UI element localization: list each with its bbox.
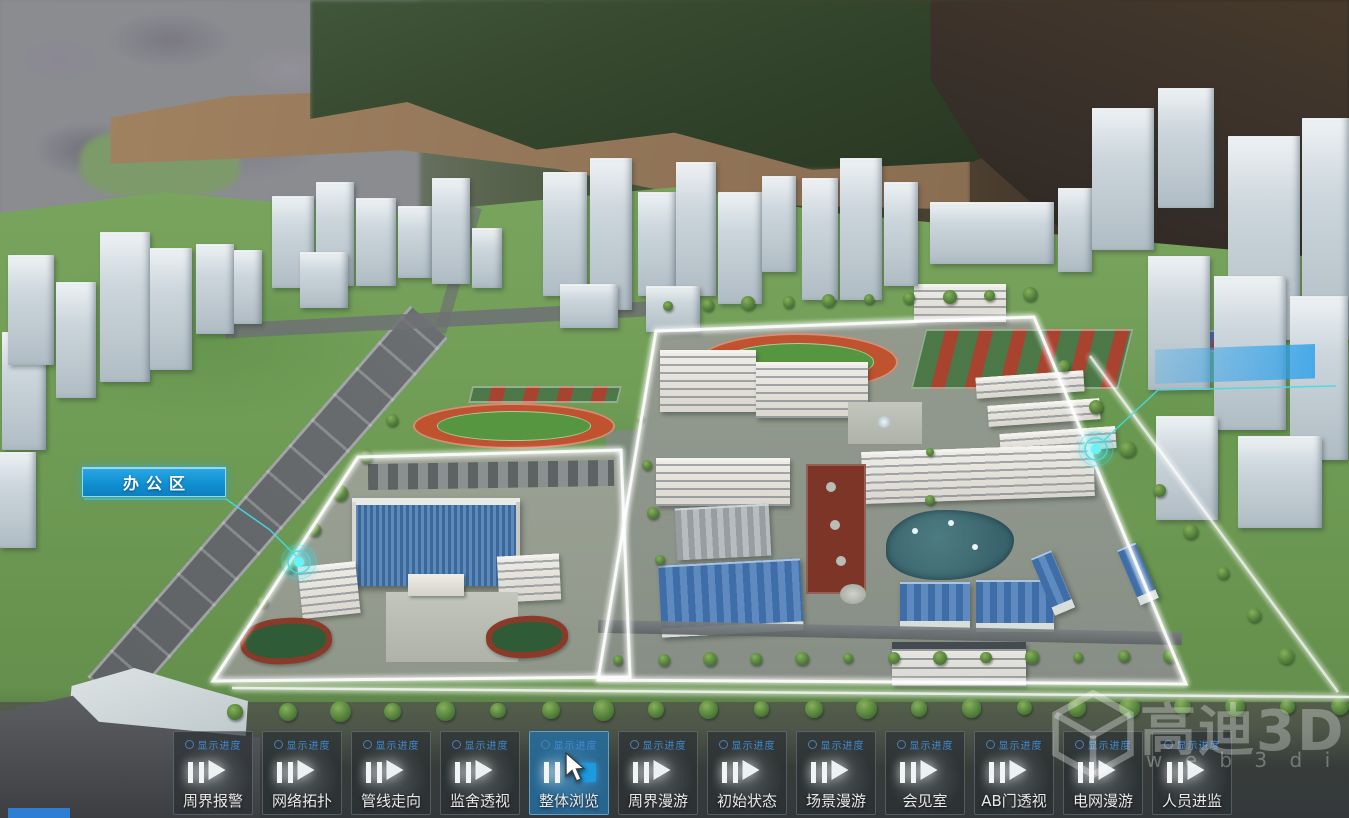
show-progress-toggle[interactable]: 显示进度	[708, 737, 786, 752]
tree	[542, 701, 560, 719]
tree	[658, 654, 670, 666]
toolbar-button-label: AB门透视	[975, 790, 1053, 811]
tree	[1217, 567, 1229, 579]
pause-icon[interactable]	[188, 762, 204, 783]
tree	[330, 701, 351, 722]
toolbar-button-8[interactable]: 显示进度 场景漫游	[796, 731, 876, 815]
play-icon[interactable]	[743, 760, 760, 780]
tree	[925, 495, 935, 505]
fountain-small-3	[836, 556, 846, 566]
office-entrance-canopy	[408, 574, 464, 596]
toolbar-button-1[interactable]: 显示进度 周界报警	[173, 731, 253, 815]
pond-fountain-1	[912, 528, 918, 534]
city-building	[840, 158, 882, 300]
progress-radio-icon[interactable]	[630, 740, 639, 749]
tree	[856, 698, 877, 719]
play-icon[interactable]	[298, 760, 315, 780]
tree	[750, 653, 761, 664]
pond-fountain-2	[948, 520, 954, 526]
toolbar-button-label: 人员进监	[1153, 790, 1231, 811]
toolbar-button-9[interactable]: 显示进度 会见室	[885, 731, 965, 815]
play-icon[interactable]	[387, 760, 404, 780]
pause-icon[interactable]	[1078, 762, 1094, 783]
city-building	[1092, 108, 1154, 250]
city-building	[718, 192, 762, 304]
workshop-building-1	[656, 458, 790, 506]
pond-fountain-3	[972, 544, 978, 550]
tree	[1153, 484, 1166, 497]
city-building	[100, 232, 150, 382]
school-building-outside	[914, 284, 1006, 322]
progress-label: 显示进度	[287, 737, 331, 752]
progress-label: 显示进度	[821, 737, 865, 752]
progress-label: 显示进度	[376, 737, 420, 752]
tree	[256, 596, 268, 608]
tree	[1247, 608, 1261, 622]
play-icon[interactable]	[832, 760, 849, 780]
city-building	[884, 182, 918, 286]
progress-radio-icon[interactable]	[363, 740, 372, 749]
toolbar-button-label: 管线走向	[352, 790, 430, 811]
city-building	[1058, 188, 1092, 272]
tree	[933, 651, 947, 665]
city-building	[762, 176, 796, 272]
tree	[1163, 649, 1177, 663]
progress-radio-icon[interactable]	[541, 740, 550, 749]
progress-radio-icon[interactable]	[808, 740, 817, 749]
play-icon[interactable]	[1099, 760, 1116, 780]
show-progress-toggle[interactable]: 显示进度	[886, 737, 964, 752]
city-building	[560, 284, 618, 328]
city-building	[1156, 416, 1218, 520]
city-building	[646, 286, 700, 332]
progress-radio-icon[interactable]	[185, 740, 194, 749]
city-building	[234, 250, 262, 324]
city-building	[432, 178, 470, 284]
progress-label: 显示进度	[910, 737, 954, 752]
tree	[943, 290, 957, 304]
fountain-small-1	[826, 482, 836, 492]
tree	[307, 523, 320, 536]
toolbar-button-10[interactable]: 显示进度 AB门透视	[974, 731, 1054, 815]
tree	[386, 414, 398, 426]
show-progress-toggle[interactable]: 显示进度	[1064, 737, 1142, 752]
play-icon[interactable]	[1188, 760, 1205, 780]
pause-icon[interactable]	[811, 762, 827, 783]
3d-scene-viewport[interactable]: 办公区 显示进度 周界报警 显示进度 网络拓扑	[0, 0, 1349, 818]
pause-icon[interactable]	[989, 762, 1005, 783]
progress-label: 显示进度	[198, 737, 242, 752]
toolbar-button-label: 监舍透视	[441, 790, 519, 811]
office-main-building	[352, 498, 520, 586]
city-building	[638, 192, 676, 296]
building-highlight-slab	[1155, 344, 1315, 384]
tree	[783, 296, 794, 307]
tree	[754, 701, 769, 716]
city-building	[8, 255, 54, 365]
progress-radio-icon[interactable]	[274, 740, 283, 749]
progress-radio-icon[interactable]	[452, 740, 461, 749]
progress-label: 显示进度	[643, 737, 687, 752]
tree	[647, 507, 659, 519]
tree	[1119, 697, 1140, 718]
progress-radio-icon[interactable]	[1164, 740, 1173, 749]
city-building	[0, 452, 36, 548]
tree	[1068, 698, 1086, 716]
play-icon[interactable]	[209, 760, 226, 780]
toolbar-button-label: 初始状态	[708, 790, 786, 811]
tree	[384, 703, 401, 720]
campus-building-a	[660, 350, 756, 412]
progress-label: 显示进度	[1177, 737, 1221, 752]
show-progress-toggle[interactable]: 显示进度	[975, 737, 1053, 752]
toolbar-button-label: 周界漫游	[619, 790, 697, 811]
running-track-office	[413, 403, 615, 449]
city-building	[300, 252, 348, 308]
pause-icon[interactable]	[633, 762, 649, 783]
tree	[332, 485, 348, 501]
toolbar-button-3[interactable]: 显示进度 管线走向	[351, 731, 431, 815]
toolbar-button-label: 整体浏览	[530, 790, 608, 811]
tree	[980, 652, 991, 663]
workshop-building-2	[861, 444, 1095, 504]
city-building	[196, 244, 234, 334]
city-building	[56, 282, 96, 398]
play-icon[interactable]	[1010, 760, 1027, 780]
toolbar-button-label: 场景漫游	[797, 790, 875, 811]
fountain-small-2	[830, 520, 840, 530]
pause-icon[interactable]	[900, 762, 916, 783]
tree	[1119, 441, 1135, 457]
city-building	[676, 162, 716, 296]
tree	[1023, 287, 1036, 300]
city-building	[930, 202, 1054, 264]
tree	[1174, 698, 1191, 715]
pause-icon[interactable]	[366, 762, 382, 783]
toolbar-button-label: 周界报警	[174, 790, 252, 811]
warehouse-blue-small-1	[900, 582, 970, 630]
show-progress-toggle[interactable]: 显示进度	[619, 737, 697, 752]
progress-radio-icon[interactable]	[897, 740, 906, 749]
show-progress-toggle[interactable]: 显示进度	[1153, 737, 1231, 752]
tree	[593, 699, 614, 720]
pause-icon[interactable]	[1167, 762, 1183, 783]
toolbar-button-label: 网络拓扑	[263, 790, 341, 811]
pause-icon[interactable]	[722, 762, 738, 783]
play-icon[interactable]	[476, 760, 493, 780]
circular-plaza	[840, 584, 866, 604]
tree	[911, 700, 928, 717]
progress-label: 显示进度	[999, 737, 1043, 752]
play-icon[interactable]	[654, 760, 671, 780]
pause-icon[interactable]	[277, 762, 293, 783]
toolbar-button-2[interactable]: 显示进度 网络拓扑	[262, 731, 342, 815]
tree	[1058, 360, 1070, 372]
show-progress-toggle[interactable]: 显示进度	[441, 737, 519, 752]
city-building	[398, 206, 432, 278]
show-progress-toggle[interactable]: 显示进度	[174, 737, 252, 752]
tree	[795, 652, 808, 665]
playback-toolbar: 显示进度 周界报警 显示进度 网络拓扑 显示进度	[0, 731, 1349, 818]
show-progress-toggle[interactable]: 显示进度	[263, 737, 341, 752]
tree	[1280, 699, 1295, 714]
city-building	[802, 178, 838, 300]
tree	[227, 704, 242, 719]
tennis-courts-office	[468, 386, 622, 403]
toolbar-button-12[interactable]: 显示进度 人员进监	[1152, 731, 1232, 815]
play-icon[interactable]	[921, 760, 938, 780]
show-progress-toggle[interactable]: 显示进度	[352, 737, 430, 752]
tree	[962, 698, 982, 718]
tree	[1025, 650, 1038, 663]
progress-label: 显示进度	[465, 737, 509, 752]
toolbar-button-label: 会见室	[886, 790, 964, 811]
progress-label: 显示进度	[554, 737, 598, 752]
tree	[436, 701, 456, 721]
tree	[280, 558, 295, 573]
toolbar-button-7[interactable]: 显示进度 初始状态	[707, 731, 787, 815]
tree	[1331, 697, 1349, 715]
progress-label: 显示进度	[732, 737, 776, 752]
city-building	[150, 248, 192, 370]
city-building	[472, 228, 502, 288]
progress-radio-icon[interactable]	[986, 740, 995, 749]
parking-lot-office	[368, 460, 614, 490]
soccer-field	[437, 411, 591, 440]
pause-icon[interactable]	[455, 762, 471, 783]
toolbar-button-11[interactable]: 显示进度 电网漫游	[1063, 731, 1143, 815]
tree	[702, 299, 714, 311]
progress-radio-icon[interactable]	[1075, 740, 1084, 749]
tree	[888, 652, 900, 664]
progress-label: 显示进度	[1088, 737, 1132, 752]
toolbar-button-4[interactable]: 显示进度 监舍透视	[440, 731, 520, 815]
city-building	[356, 198, 396, 286]
fountain	[878, 416, 890, 428]
tree	[655, 555, 664, 564]
office-area-label[interactable]: 办公区	[82, 467, 226, 497]
office-area-label-text: 办公区	[116, 470, 192, 494]
city-building	[1158, 88, 1214, 208]
office-side-building-left	[297, 561, 360, 619]
toolbar-button-label: 电网漫游	[1064, 790, 1142, 811]
toolbar-button-5[interactable]: 显示进度 整体浏览	[529, 731, 609, 815]
city-building	[543, 172, 587, 296]
progress-radio-icon[interactable]	[719, 740, 728, 749]
tree	[279, 703, 297, 721]
toolbar-button-6[interactable]: 显示进度 周界漫游	[618, 731, 698, 815]
warehouse-gray	[675, 504, 772, 561]
show-progress-toggle[interactable]: 显示进度	[530, 737, 608, 752]
tree	[490, 703, 505, 718]
tree	[805, 700, 823, 718]
tree	[1225, 697, 1245, 717]
tree	[1073, 652, 1083, 662]
pause-icon[interactable]	[544, 762, 560, 783]
show-progress-toggle[interactable]: 显示进度	[797, 737, 875, 752]
city-building	[1238, 436, 1322, 528]
gate-building	[892, 642, 1026, 686]
stop-icon[interactable]	[577, 763, 596, 782]
